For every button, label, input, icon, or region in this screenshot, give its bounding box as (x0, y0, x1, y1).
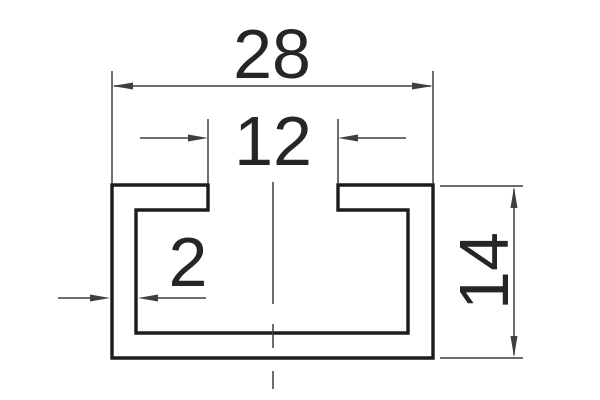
overall-width-label: 28 (233, 15, 311, 93)
thickness-arrowhead-right (138, 295, 158, 302)
slot-width-label: 12 (234, 102, 312, 180)
width-arrowhead-left (112, 83, 133, 90)
height-arrowhead-top (511, 187, 518, 208)
overall-height-dimension: 14 (440, 186, 523, 358)
height-arrowhead-bottom (511, 336, 518, 357)
slot-arrowhead-right (338, 135, 358, 142)
slot-width-dimension: 12 (140, 102, 406, 184)
wall-thickness-label: 2 (169, 223, 208, 301)
c-channel-drawing: 28 12 2 14 (0, 0, 600, 400)
technical-drawing-canvas: 28 12 2 14 (0, 0, 600, 400)
thickness-arrowhead-left (90, 295, 110, 302)
width-arrowhead-right (412, 83, 433, 90)
overall-height-label: 14 (445, 232, 523, 310)
slot-arrowhead-left (188, 135, 208, 142)
